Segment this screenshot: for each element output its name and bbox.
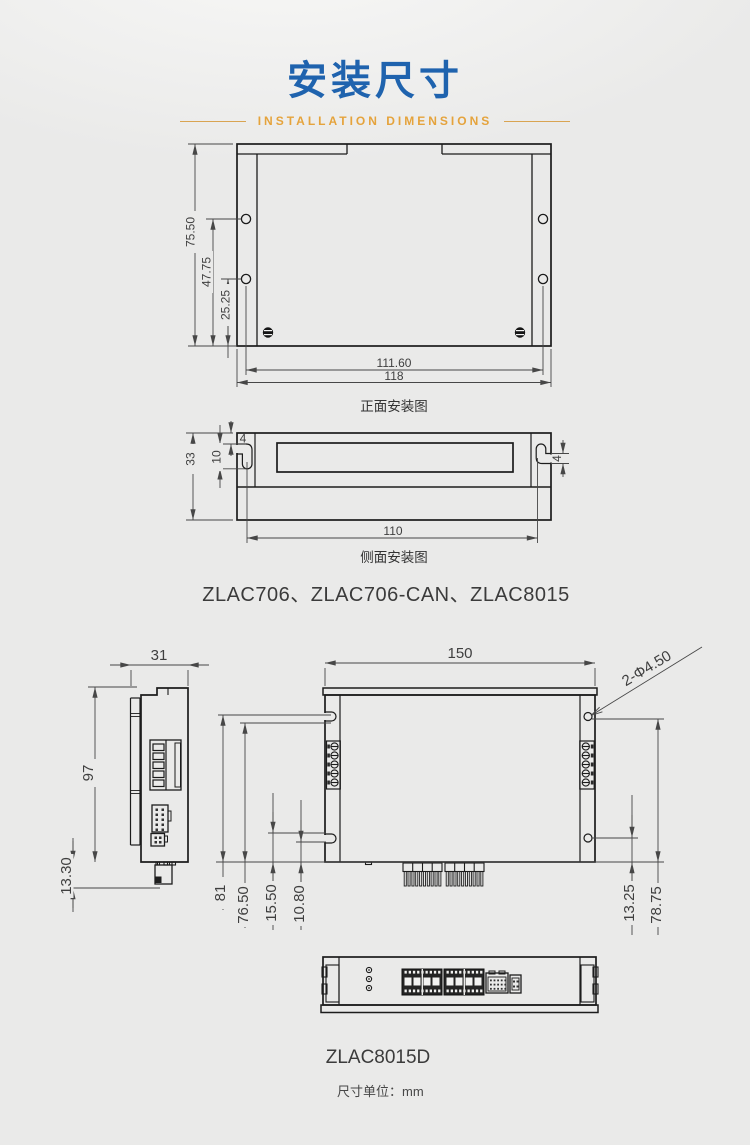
dimension-drawings: 75.50 47.75 25.25 111.60 118 正面安装图	[0, 0, 750, 1145]
bottom-tab	[155, 862, 172, 884]
dim-label-slot-depth: 10	[209, 443, 224, 471]
dim-label-8015d-height: 97	[80, 759, 97, 787]
dim-label-slot-height: 4	[550, 455, 564, 462]
dim-label-slot-span: 110	[383, 524, 402, 538]
svg-text:10.80: 10.80	[291, 885, 308, 923]
dim-label-slot-offset: 4	[240, 432, 247, 446]
svg-text:81: 81	[212, 885, 229, 902]
mounting-screw-icon	[263, 327, 525, 337]
svg-text:47.75: 47.75	[200, 257, 214, 287]
dim-label-8015d-tab: 13.30	[58, 854, 75, 898]
model-8015d-label: ZLAC8015D	[326, 1047, 431, 1068]
terminal-strip-left	[327, 741, 341, 789]
dim-label-side-height: 33	[183, 444, 198, 474]
svg-text:76.50: 76.50	[235, 886, 252, 924]
dim-label-8015d-width: 31	[151, 647, 168, 664]
dim-label-height: 75.50	[183, 211, 198, 253]
front-view-caption: 正面安装图	[360, 399, 428, 414]
led-indicators	[366, 967, 371, 990]
dim-label-hole-bot: 13.25	[621, 881, 638, 925]
terminal-block-connector	[150, 740, 181, 790]
dim-label-slot-bot-a: 15.50	[263, 881, 280, 925]
svg-text:25.25: 25.25	[219, 290, 233, 320]
dim-label-hole-top: 78.75	[648, 883, 665, 927]
zlac8015d-bottom-view	[321, 957, 598, 1013]
dim-label-hole-callout: 2-Φ4.50	[619, 647, 674, 690]
mounting-flange	[131, 698, 141, 845]
side-view-drawing: 33 10 4 4 110 侧面安装图	[183, 421, 569, 565]
svg-text:33: 33	[184, 452, 198, 466]
svg-text:97: 97	[80, 765, 97, 782]
svg-text:2-Φ4.50: 2-Φ4.50	[619, 647, 674, 690]
svg-text:15.50: 15.50	[263, 884, 280, 922]
dim-label-slot-bot-b: 10.80	[291, 882, 308, 926]
svg-text:13.30: 13.30	[58, 857, 75, 895]
dim-label-8015d-front-width: 150	[447, 645, 472, 662]
signal-connector	[151, 805, 171, 846]
svg-text:13.25: 13.25	[621, 884, 638, 922]
dim-label-hole-upper: 47.75	[199, 251, 214, 293]
unit-note: 尺寸单位：mm	[337, 1084, 424, 1099]
side-view-caption: 侧面安装图	[360, 550, 428, 565]
svg-text:78.75: 78.75	[648, 886, 665, 924]
bottom-terminal-connectors	[402, 969, 484, 995]
svg-text:4: 4	[550, 455, 564, 462]
terminal-strip-right	[580, 741, 594, 789]
zlac8015d-front-view: 150 2-Φ4.50 81 76.50 15.50 10.80 13.25 7…	[212, 645, 702, 935]
svg-text:75.50: 75.50	[184, 217, 198, 247]
front-view-drawing: 75.50 47.75 25.25 111.60 118 正面安装图	[183, 144, 551, 414]
dim-label-width: 118	[384, 369, 403, 383]
models-group1-label: ZLAC706、ZLAC706-CAN、ZLAC8015	[202, 584, 570, 606]
dim-label-slot-top-a: 81	[212, 877, 229, 909]
dim-label-hole-span: 111.60	[377, 356, 412, 370]
bottom-pin-connectors	[366, 862, 485, 886]
svg-text:10: 10	[210, 450, 224, 464]
dim-label-slot-top-b: 76.50	[235, 883, 252, 927]
dim-label-hole-lower: 25.25	[218, 284, 233, 326]
zlac8015d-side-view: 31 97 13.30	[58, 647, 209, 912]
bottom-socket-connectors	[486, 971, 521, 993]
